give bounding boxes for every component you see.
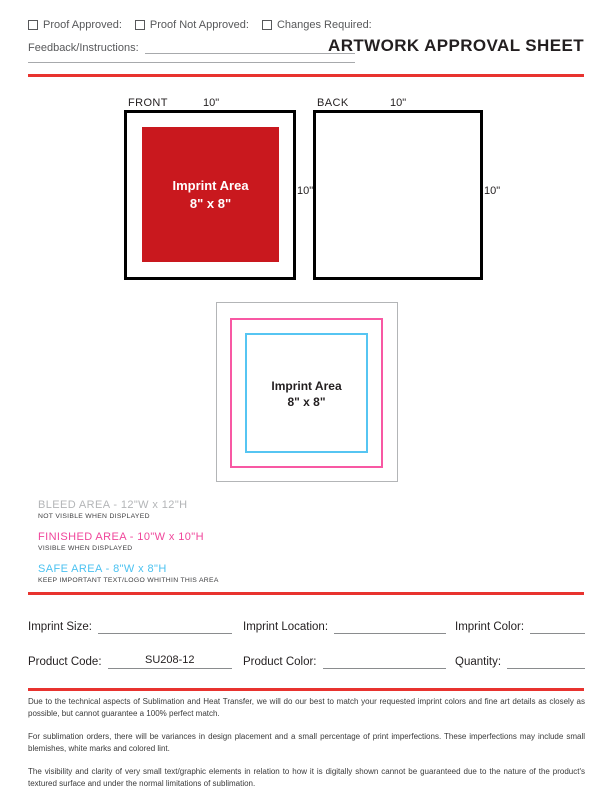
safe-legend-subtitle: KEEP IMPORTANT TEXT/LOGO WHITHIN THIS AR… [38,577,219,584]
front-height-dimension: 10" [297,185,313,197]
finished-legend-title: FINISHED AREA - 10"W x 10"H [38,531,219,543]
imprint-size-input[interactable] [98,620,232,634]
back-width-dimension: 10" [390,97,406,109]
product-code-input[interactable]: SU208-12 [108,655,232,669]
safe-legend-title: SAFE AREA - 8"W x 8"H [38,563,219,575]
diagram-imprint-line2: 8" x 8" [287,395,325,411]
imprint-color-input[interactable] [530,620,585,634]
imprint-color-label: Imprint Color: [455,621,524,634]
product-color-input[interactable] [323,655,446,669]
front-width-dimension: 10" [203,97,219,109]
approval-checkbox-row: Proof Approved: Proof Not Approved: Chan… [28,19,372,31]
finished-area-box: Imprint Area 8" x 8" [230,318,383,468]
changes-required-checkbox[interactable] [262,20,272,30]
imprint-location-input[interactable] [334,620,446,634]
product-code-label: Product Code: [28,656,102,669]
changes-required-option[interactable]: Changes Required: [262,19,372,31]
product-color-label: Product Color: [243,656,317,669]
back-view-box [313,110,483,280]
product-color-field: Product Color: [243,653,446,669]
header-divider [28,74,584,77]
area-legend: BLEED AREA - 12"W x 12"H NOT VISIBLE WHE… [38,499,219,595]
front-imprint-line1: Imprint Area [172,177,248,195]
disclaimer-paragraph-2: For sublimation orders, there will be va… [28,731,585,756]
safe-area-box: Imprint Area 8" x 8" [245,333,368,453]
quantity-input[interactable] [507,655,585,669]
front-imprint-line2: 8" x 8" [190,195,231,213]
feedback-label: Feedback/Instructions: [28,42,139,54]
legend-item-finished: FINISHED AREA - 10"W x 10"H VISIBLE WHEN… [38,531,219,552]
back-view-label: BACK [317,97,349,109]
proof-approved-option[interactable]: Proof Approved: [28,19,122,31]
bleed-area-box: Imprint Area 8" x 8" [216,302,398,482]
disclaimer-section: Due to the technical aspects of Sublimat… [28,696,585,792]
legend-item-bleed: BLEED AREA - 12"W x 12"H NOT VISIBLE WHE… [38,499,219,520]
feedback-row: Feedback/Instructions: [28,41,355,54]
imprint-color-field: Imprint Color: [455,618,585,634]
quantity-field: Quantity: [455,653,585,669]
imprint-size-field: Imprint Size: [28,618,232,634]
page-title: ARTWORK APPROVAL SHEET [328,36,584,56]
diagram-imprint-line1: Imprint Area [271,379,341,395]
feedback-input-line-2[interactable] [28,62,355,63]
product-code-field: Product Code: SU208-12 [28,653,232,669]
proof-not-approved-checkbox[interactable] [135,20,145,30]
front-imprint-area: Imprint Area 8" x 8" [142,127,279,262]
quantity-label: Quantity: [455,656,501,669]
finished-legend-subtitle: VISIBLE WHEN DISPLAYED [38,545,219,552]
bleed-legend-title: BLEED AREA - 12"W x 12"H [38,499,219,511]
legend-item-safe: SAFE AREA - 8"W x 8"H KEEP IMPORTANT TEX… [38,563,219,584]
imprint-location-label: Imprint Location: [243,621,328,634]
feedback-input-line-1[interactable] [145,41,355,54]
bleed-legend-subtitle: NOT VISIBLE WHEN DISPLAYED [38,513,219,520]
proof-not-approved-label: Proof Not Approved: [150,19,249,31]
proof-approved-checkbox[interactable] [28,20,38,30]
proof-not-approved-option[interactable]: Proof Not Approved: [135,19,249,31]
disclaimer-paragraph-3: The visibility and clarity of very small… [28,766,585,791]
back-height-dimension: 10" [484,185,500,197]
disclaimer-paragraph-1: Due to the technical aspects of Sublimat… [28,696,585,721]
changes-required-label: Changes Required: [277,19,372,31]
product-code-value: SU208-12 [145,654,195,668]
artwork-approval-sheet: Proof Approved: Proof Not Approved: Chan… [0,0,612,792]
form-top-divider [28,592,584,595]
front-view-label: FRONT [128,97,168,109]
front-view-box: Imprint Area 8" x 8" [124,110,296,280]
disclaimer-divider [28,688,584,691]
imprint-size-label: Imprint Size: [28,621,92,634]
imprint-location-field: Imprint Location: [243,618,446,634]
proof-approved-label: Proof Approved: [43,19,122,31]
